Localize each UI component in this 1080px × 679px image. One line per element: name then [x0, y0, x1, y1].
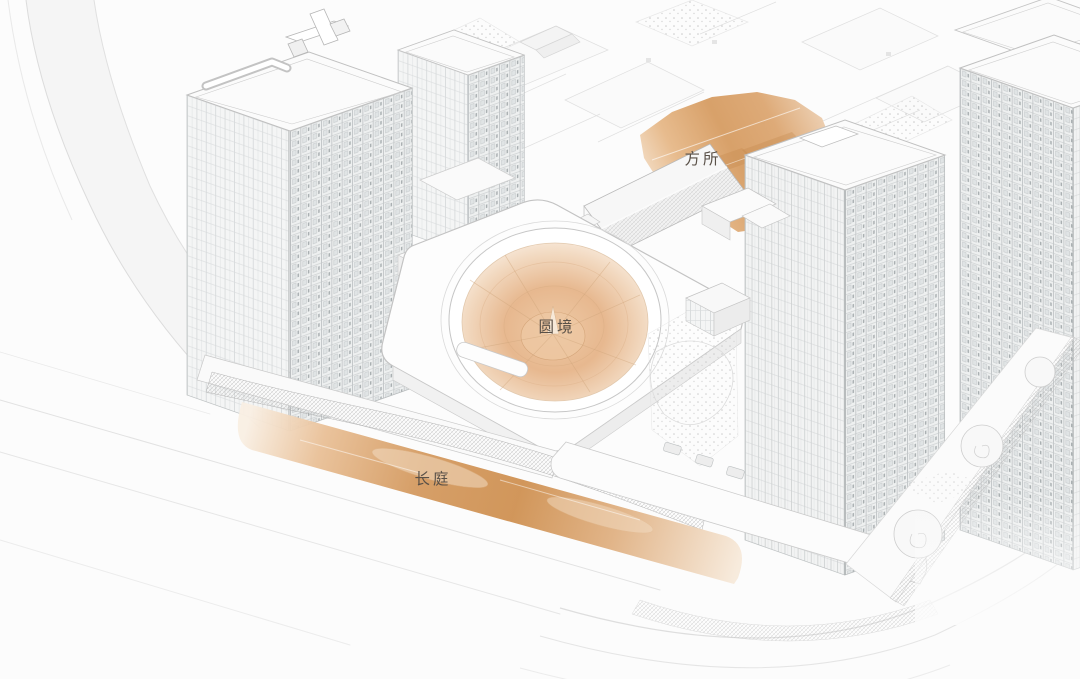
diagram-svg: 方所 圆境 长庭: [0, 0, 1080, 679]
base-fade: [915, 495, 1080, 625]
site-axonometric-diagram: 方所 圆境 长庭: [0, 0, 1080, 679]
label-fangsuo: 方所: [684, 150, 721, 168]
label-changting: 长庭: [414, 470, 451, 488]
label-yuanjing: 圆境: [538, 317, 575, 336]
